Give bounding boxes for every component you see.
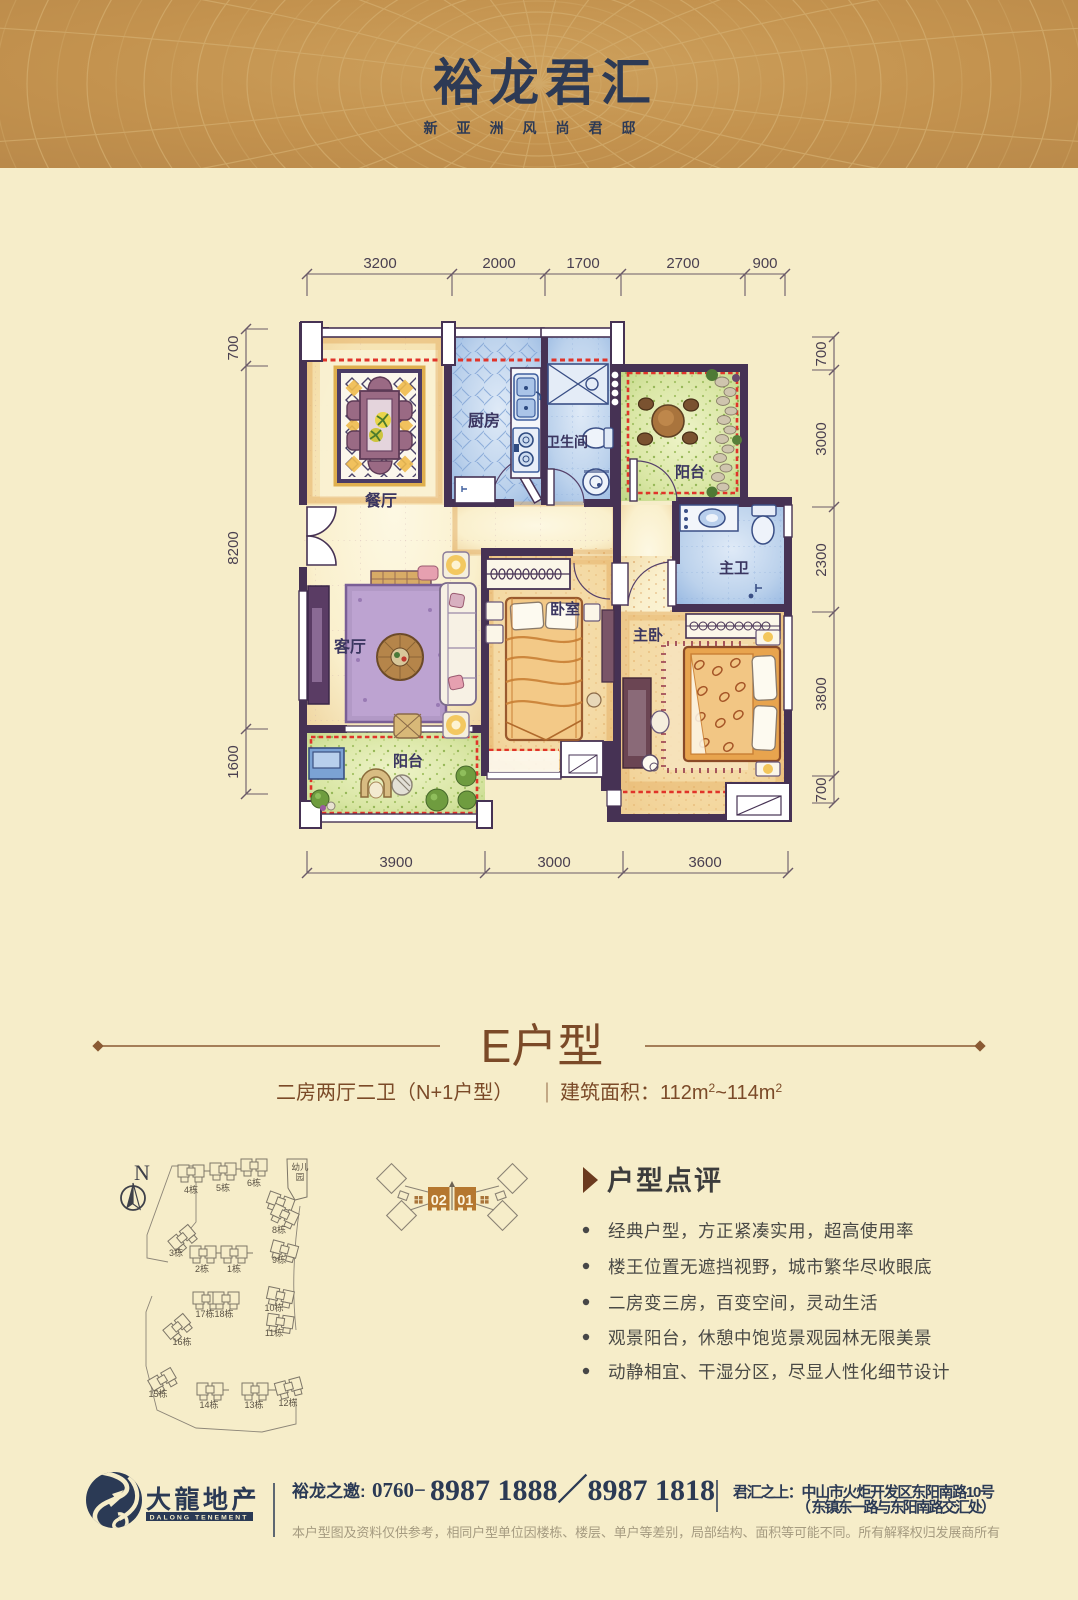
svg-text:｜: ｜ (537, 1082, 557, 1105)
svg-text:阳台: 阳台 (675, 463, 705, 481)
svg-text:户型点评: 户型点评 (607, 1165, 723, 1196)
svg-text:6栋: 6栋 (247, 1177, 261, 1188)
svg-text:3栋: 3栋 (169, 1247, 183, 1258)
svg-text:2700: 2700 (666, 255, 699, 272)
svg-text:新亚洲风尚君邸: 新亚洲风尚君邸 (424, 120, 655, 136)
svg-text:（ 东镇东一路与东阳南路交汇处）: （ 东镇东一路与东阳南路交汇处） (796, 1498, 996, 1516)
svg-text:客厅: 客厅 (334, 637, 366, 656)
svg-text:主卧: 主卧 (633, 626, 663, 644)
svg-text:3200: 3200 (363, 255, 396, 272)
svg-text:1700: 1700 (566, 255, 599, 272)
svg-text:经典户型，方正紧凑实用，超高使用率: 经典户型，方正紧凑实用，超高使用率 (608, 1221, 914, 1241)
svg-text:主卫: 主卫 (719, 559, 749, 577)
svg-text:10栋: 10栋 (264, 1302, 283, 1313)
svg-text:700: 700 (225, 335, 242, 360)
svg-text:本户型图及资料仅供参考，相同户型单位因楼栋、楼层、单户等差别: 本户型图及资料仅供参考，相同户型单位因楼栋、楼层、单户等差别，局部结构、面积等可… (292, 1525, 1000, 1540)
svg-text:园: 园 (296, 1172, 305, 1182)
svg-text:卧室: 卧室 (550, 600, 580, 618)
svg-text:3600: 3600 (688, 854, 721, 871)
svg-text:DALONG TENEMENT: DALONG TENEMENT (150, 1515, 249, 1522)
svg-text:8栋: 8栋 (272, 1224, 286, 1235)
svg-text:02: 02 (431, 1193, 447, 1209)
svg-text:建筑面积：112m2~114m2: 建筑面积：112m2~114m2 (560, 1081, 782, 1104)
svg-text:11栋: 11栋 (265, 1327, 283, 1338)
svg-text:700: 700 (813, 341, 830, 366)
svg-text:8987 1888／8987 1818: 8987 1888／8987 1818 (430, 1474, 715, 1507)
svg-text:15栋: 15栋 (148, 1388, 167, 1399)
svg-text:卫生间: 卫生间 (546, 434, 588, 450)
svg-text:2300: 2300 (813, 543, 830, 576)
svg-text:16栋: 16栋 (172, 1336, 191, 1347)
svg-text:3800: 3800 (813, 677, 830, 710)
svg-text:1栋: 1栋 (227, 1263, 241, 1274)
svg-text:E户型: E户型 (481, 1020, 604, 1072)
svg-text:N: N (134, 1160, 150, 1185)
svg-text:14栋: 14栋 (199, 1399, 218, 1410)
svg-text:700: 700 (813, 777, 830, 802)
svg-text:楼王位置无遮挡视野，城市繁华尽收眼底: 楼王位置无遮挡视野，城市繁华尽收眼底 (608, 1257, 932, 1277)
svg-text:裕龙之邀:: 裕龙之邀: (292, 1481, 366, 1501)
svg-text:3000: 3000 (537, 854, 570, 871)
svg-text:8200: 8200 (225, 531, 242, 564)
svg-text:17栋: 17栋 (195, 1308, 214, 1319)
svg-text:9栋: 9栋 (272, 1254, 286, 1265)
svg-text:餐厅: 餐厅 (364, 491, 397, 510)
svg-text:5栋: 5栋 (216, 1182, 230, 1193)
svg-text:二房两厅二卫（N+1户型）: 二房两厅二卫（N+1户型） (276, 1081, 513, 1104)
svg-text:2栋: 2栋 (195, 1263, 209, 1274)
svg-text:4栋: 4栋 (184, 1184, 198, 1195)
svg-text:二房变三房，百变空间，灵动生活: 二房变三房，百变空间，灵动生活 (608, 1293, 878, 1313)
svg-text:3000: 3000 (813, 422, 830, 455)
svg-text:2000: 2000 (482, 255, 515, 272)
svg-text:动静相宜、干湿分区，尽显人性化细节设计: 动静相宜、干湿分区，尽显人性化细节设计 (608, 1362, 950, 1382)
svg-text:01: 01 (457, 1193, 473, 1209)
svg-text:幼儿: 幼儿 (291, 1162, 309, 1172)
svg-text:0760−: 0760− (372, 1478, 426, 1502)
svg-text:阳台: 阳台 (393, 752, 423, 770)
svg-text:18栋: 18栋 (214, 1308, 233, 1319)
svg-text:12栋: 12栋 (278, 1397, 297, 1408)
svg-text:厨房: 厨房 (468, 411, 500, 430)
svg-text:大龍地产: 大龍地产 (146, 1485, 260, 1514)
svg-text:900: 900 (752, 255, 777, 272)
svg-text:1600: 1600 (225, 745, 242, 778)
svg-text:观景阳台，休憩中饱览景观园林无限美景: 观景阳台，休憩中饱览景观园林无限美景 (608, 1328, 932, 1348)
svg-text:3900: 3900 (379, 854, 412, 871)
svg-text:13栋: 13栋 (244, 1399, 263, 1410)
svg-text:裕龙君汇: 裕龙君汇 (433, 55, 657, 111)
